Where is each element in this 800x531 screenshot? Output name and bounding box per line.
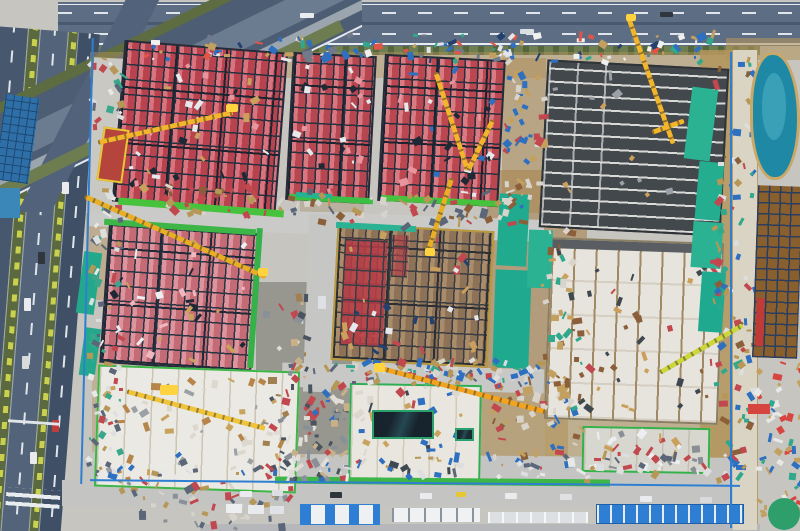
materials [633, 446, 642, 456]
debris [96, 319, 101, 322]
materials [354, 77, 363, 86]
materials [587, 290, 592, 297]
materials [379, 231, 386, 239]
materials [251, 122, 259, 130]
materials [447, 306, 454, 313]
materials [192, 124, 198, 131]
materials [187, 377, 196, 386]
safety-net [698, 271, 726, 333]
debris [537, 181, 544, 185]
materials [247, 458, 254, 465]
vehicle [560, 494, 572, 500]
tower-crane-cab [374, 363, 385, 372]
materials [238, 410, 245, 415]
debris [743, 318, 747, 325]
materials [636, 336, 645, 345]
debris [574, 357, 579, 362]
debris [564, 379, 570, 388]
materials [584, 403, 595, 413]
vehicle [420, 493, 432, 499]
site-office-white [392, 508, 480, 522]
materials [435, 237, 438, 243]
materials [338, 146, 345, 153]
debris [448, 369, 454, 376]
debris [541, 284, 544, 288]
materials [621, 404, 629, 409]
debris [516, 84, 522, 91]
debris [159, 469, 168, 474]
materials [452, 66, 459, 74]
debris [449, 216, 454, 220]
debris [334, 413, 341, 419]
debris [296, 293, 303, 302]
debris [428, 457, 433, 460]
materials [428, 99, 433, 104]
debris [493, 454, 496, 460]
debris [262, 311, 269, 318]
materials [610, 288, 615, 294]
debris [236, 472, 239, 475]
materials [404, 102, 409, 111]
debris [263, 441, 270, 447]
materials [359, 429, 365, 433]
materials [156, 291, 164, 299]
materials [192, 290, 196, 297]
debris [423, 205, 429, 212]
materials [692, 458, 698, 463]
materials [125, 282, 130, 289]
debris [796, 379, 800, 390]
vehicle [30, 452, 37, 464]
debris [594, 457, 601, 461]
materials [699, 369, 703, 374]
debris [455, 208, 464, 214]
debris [308, 384, 312, 393]
materials [172, 99, 176, 104]
debris [721, 209, 727, 216]
materials [433, 430, 441, 438]
excavation-pit [455, 428, 474, 441]
debris [551, 315, 559, 321]
materials [178, 136, 188, 144]
materials [687, 277, 693, 283]
materials [188, 268, 194, 276]
debris [551, 59, 558, 63]
debris [455, 51, 461, 55]
debris [173, 475, 179, 480]
materials [258, 378, 266, 386]
materials [427, 448, 436, 451]
materials [241, 172, 247, 182]
materials [618, 430, 625, 438]
debris [289, 363, 294, 367]
debris [346, 364, 355, 368]
debris [108, 447, 112, 450]
materials [211, 380, 218, 389]
materials [683, 455, 691, 463]
vehicle [22, 356, 29, 369]
debris [647, 54, 650, 57]
materials [608, 465, 616, 469]
materials [412, 137, 423, 147]
materials [629, 155, 635, 161]
debris [553, 408, 557, 414]
debris [291, 339, 298, 346]
site-fence-east [730, 52, 732, 528]
materials [137, 296, 145, 300]
debris [87, 353, 93, 359]
debris [662, 51, 665, 57]
debris [194, 521, 199, 528]
debris [705, 37, 713, 46]
materials [178, 288, 186, 298]
materials [346, 148, 351, 154]
debris [768, 433, 772, 442]
materials [146, 469, 150, 475]
materials [383, 303, 392, 312]
debris [732, 129, 741, 136]
materials [644, 368, 650, 373]
materials [184, 389, 194, 396]
debris [407, 52, 414, 60]
materials [226, 344, 236, 354]
materials [383, 440, 390, 447]
debris [301, 453, 305, 457]
vehicle [318, 296, 326, 309]
debris [776, 459, 784, 467]
debris [268, 515, 272, 521]
debris [304, 416, 310, 420]
materials [477, 114, 480, 121]
materials [594, 268, 599, 273]
vehicle [505, 493, 517, 499]
materials [596, 431, 599, 439]
tower-crane-cab [626, 14, 636, 21]
materials [636, 428, 647, 439]
debris [93, 124, 97, 130]
materials [607, 437, 614, 446]
materials [216, 310, 220, 313]
materials [220, 170, 225, 178]
materials [348, 67, 353, 73]
materials [616, 297, 623, 307]
site-office-blue-roof [596, 504, 744, 524]
materials [605, 352, 610, 357]
materials [194, 313, 202, 322]
materials [431, 266, 441, 271]
debris [241, 518, 246, 520]
materials [141, 400, 148, 405]
materials [185, 63, 191, 69]
debris [343, 403, 349, 411]
debris [142, 496, 145, 500]
crosswalk [5, 487, 60, 509]
materials [301, 125, 307, 130]
materials [245, 440, 252, 446]
materials [447, 467, 450, 475]
materials [303, 86, 310, 94]
debris [281, 437, 286, 440]
materials [488, 98, 496, 106]
formwork-block-w [99, 223, 260, 373]
debris [774, 447, 783, 456]
debris [312, 368, 315, 374]
debris [596, 463, 604, 470]
debris [741, 414, 744, 419]
materials [485, 106, 491, 111]
materials [137, 337, 145, 345]
debris [113, 378, 118, 384]
debris [224, 54, 230, 57]
materials [228, 378, 235, 383]
materials [292, 130, 302, 139]
debris [778, 382, 782, 386]
materials [404, 403, 411, 409]
materials [188, 357, 196, 363]
materials [443, 157, 450, 162]
materials [243, 113, 249, 122]
materials [629, 408, 635, 413]
materials [453, 113, 460, 120]
materials [229, 95, 234, 100]
debris [792, 446, 796, 454]
materials [239, 341, 246, 348]
vehicle [240, 491, 252, 497]
materials [641, 352, 647, 362]
debris [524, 381, 527, 384]
materials [567, 292, 574, 301]
materials [225, 422, 234, 431]
materials [349, 85, 357, 93]
materials [110, 385, 116, 390]
debris [756, 467, 762, 472]
debris [291, 384, 294, 390]
debris [192, 512, 195, 517]
debris [734, 405, 740, 411]
debris [285, 52, 294, 57]
materials [624, 325, 629, 330]
truck [248, 505, 264, 514]
materials [318, 163, 325, 168]
debris [224, 195, 227, 197]
materials [129, 300, 135, 306]
materials [247, 78, 252, 86]
materials [134, 249, 137, 259]
materials [386, 328, 393, 335]
vehicle [330, 492, 342, 498]
debris [328, 467, 330, 472]
materials [363, 448, 367, 455]
materials [355, 390, 363, 395]
debris [504, 181, 508, 187]
debris [162, 520, 167, 523]
debris [157, 473, 162, 477]
materials [429, 316, 434, 324]
materials [109, 289, 119, 299]
debris [547, 247, 553, 255]
materials [378, 344, 388, 351]
debris [557, 342, 563, 351]
debris [562, 399, 565, 403]
debris [119, 388, 123, 391]
materials [360, 416, 366, 422]
debris [772, 437, 783, 443]
materials [645, 192, 650, 197]
debris [784, 490, 788, 497]
debris [789, 472, 796, 479]
materials [609, 71, 613, 81]
materials [477, 155, 484, 162]
materials [267, 431, 274, 436]
materials [667, 325, 674, 332]
materials [200, 430, 204, 434]
retention-pond [750, 52, 800, 180]
vehicle [520, 29, 534, 34]
debris [743, 276, 747, 280]
materials [475, 315, 479, 320]
materials [598, 366, 605, 372]
debris [288, 486, 294, 491]
materials [203, 388, 207, 391]
materials [630, 273, 634, 280]
debris [304, 294, 308, 302]
materials [131, 406, 138, 413]
materials [307, 148, 314, 155]
debris [776, 426, 785, 435]
debris [215, 188, 223, 194]
vehicle [640, 496, 652, 502]
materials [357, 93, 363, 99]
vehicle [24, 298, 31, 311]
materials [434, 171, 440, 176]
tower-crane-cab [425, 248, 435, 256]
materials [397, 93, 402, 102]
materials [199, 156, 205, 163]
materials [610, 364, 618, 372]
debris [412, 34, 418, 38]
materials [249, 95, 260, 105]
debris [422, 34, 427, 37]
materials [469, 341, 478, 350]
materials [597, 386, 601, 391]
red-tower-crane [755, 298, 765, 346]
materials [705, 394, 709, 398]
safety-net [492, 269, 531, 368]
debris [577, 330, 584, 336]
debris [719, 401, 728, 407]
debris [352, 381, 356, 385]
debris [415, 456, 421, 458]
materials [351, 102, 358, 109]
materials [152, 174, 161, 180]
materials [613, 306, 622, 313]
site-office-gray [488, 512, 588, 523]
debris [501, 198, 510, 202]
vehicle [300, 13, 314, 18]
debris [764, 505, 767, 510]
materials [449, 79, 456, 84]
materials [176, 74, 184, 84]
debris [748, 62, 751, 66]
materials [159, 323, 169, 329]
materials [238, 433, 245, 441]
materials [398, 178, 409, 187]
debris [301, 301, 304, 304]
materials [408, 73, 417, 77]
materials [248, 378, 255, 387]
materials [136, 151, 141, 156]
materials [230, 465, 237, 471]
materials [193, 424, 199, 431]
vehicle [38, 252, 45, 264]
debris [212, 504, 216, 512]
debris [714, 381, 720, 386]
materials [463, 259, 470, 266]
materials [242, 287, 245, 291]
debris [407, 193, 412, 199]
debris [468, 188, 471, 194]
materials [172, 173, 179, 180]
debris [780, 362, 786, 366]
materials [340, 137, 347, 143]
vehicle [660, 12, 673, 17]
debris [331, 420, 338, 428]
materials [163, 86, 170, 89]
truck [226, 504, 242, 513]
debris [537, 361, 546, 366]
debris [738, 62, 745, 67]
debris [384, 202, 388, 206]
materials [240, 242, 247, 249]
debris [201, 511, 208, 517]
debris [573, 54, 579, 59]
debris [517, 416, 524, 423]
materials [161, 413, 170, 421]
debris [529, 134, 533, 137]
materials [165, 429, 174, 434]
materials [185, 100, 193, 108]
materials [468, 173, 476, 179]
debris [469, 373, 473, 377]
materials [194, 99, 204, 110]
debris [106, 386, 110, 392]
materials [420, 346, 426, 355]
materials [352, 160, 354, 164]
materials [157, 337, 162, 342]
debris [151, 503, 156, 507]
debris [173, 494, 178, 499]
excavation-pit [372, 410, 434, 439]
materials [666, 188, 674, 195]
materials [146, 350, 155, 359]
materials [676, 377, 684, 386]
materials [122, 404, 130, 414]
pond-highlight [762, 73, 786, 140]
debris [315, 434, 319, 438]
debris [694, 40, 696, 45]
tower-crane-cab [226, 104, 238, 112]
materials [357, 155, 364, 164]
debris [139, 510, 146, 519]
materials [143, 422, 151, 432]
materials [471, 192, 476, 197]
red-container [748, 404, 770, 414]
materials [372, 349, 380, 356]
materials [437, 459, 441, 461]
materials [413, 316, 418, 324]
materials [320, 84, 327, 92]
debris [304, 435, 308, 442]
